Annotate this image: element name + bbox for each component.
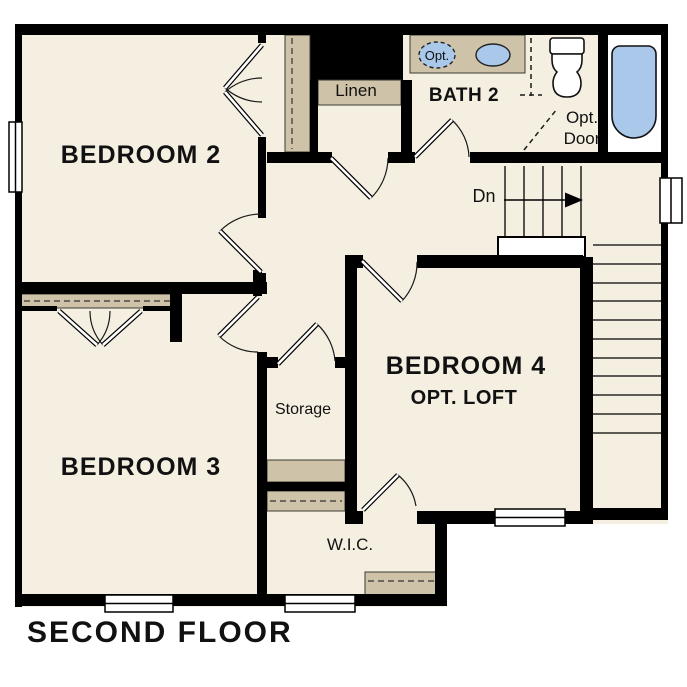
optional-sink-label: Opt. [422,48,452,63]
bedroom2-window [9,122,22,192]
storage-shelf [267,460,345,482]
storage-label: Storage [263,401,343,419]
bathtub-icon [612,46,656,138]
bedroom4-label: BEDROOM 4 [356,352,576,381]
linen-label: Linen [316,81,396,101]
opt-door-label-line1: Opt. [554,107,610,128]
stairs-dn-label: Dn [466,186,502,207]
bedroom2-closet-shelf [285,35,310,152]
floor-plan-drawing [0,0,687,687]
opt-door-label: Opt. Door [554,107,610,149]
wic-bottom-shelf [365,572,437,596]
sink-icon [476,44,510,66]
stairwell-window [660,178,682,223]
bedroom2-label: BEDROOM 2 [31,141,251,170]
stair-landing [498,237,585,257]
wic-label: W.I.C. [310,535,390,555]
opt-door-label-line2: Door [554,128,610,149]
page-title: SECOND FLOOR [27,616,293,650]
wic-window [285,595,355,612]
bedroom4-window [495,509,565,526]
toilet-icon [550,38,584,97]
bedroom3-window [105,595,173,612]
bedroom4-sub-label: OPT. LOFT [364,387,564,410]
bedroom3-label: BEDROOM 3 [31,453,251,482]
floor-plan: BEDROOM 2 BATH 2 Linen Opt. Door Dn BEDR… [0,0,687,687]
bath2-label: BATH 2 [414,85,514,107]
